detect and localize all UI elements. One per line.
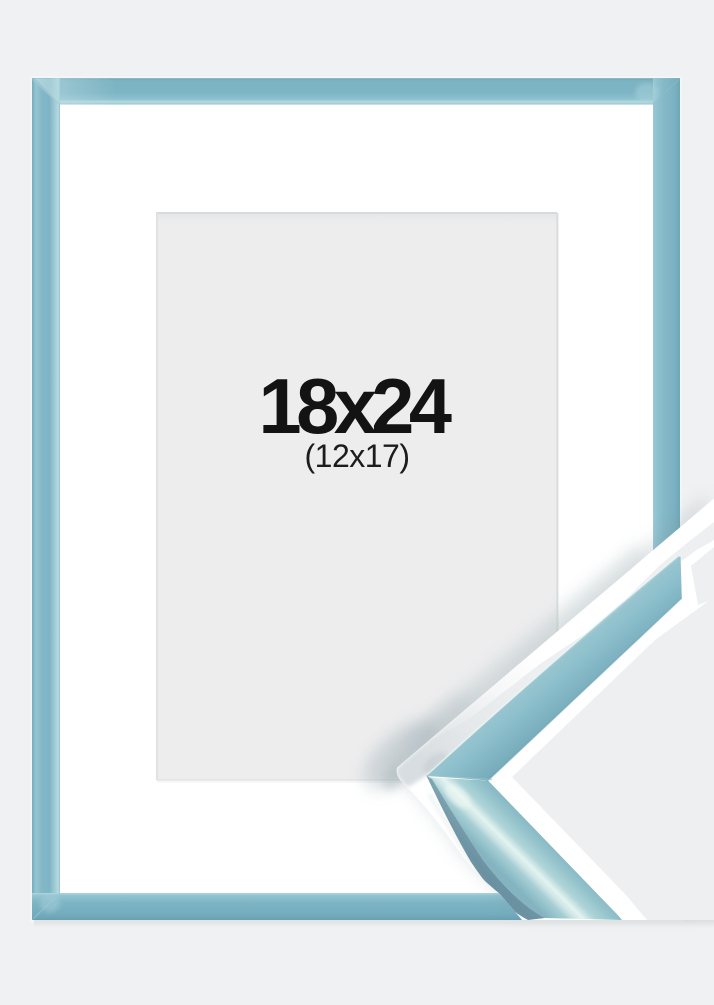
svg-text:(12x17): (12x17): [305, 438, 410, 474]
